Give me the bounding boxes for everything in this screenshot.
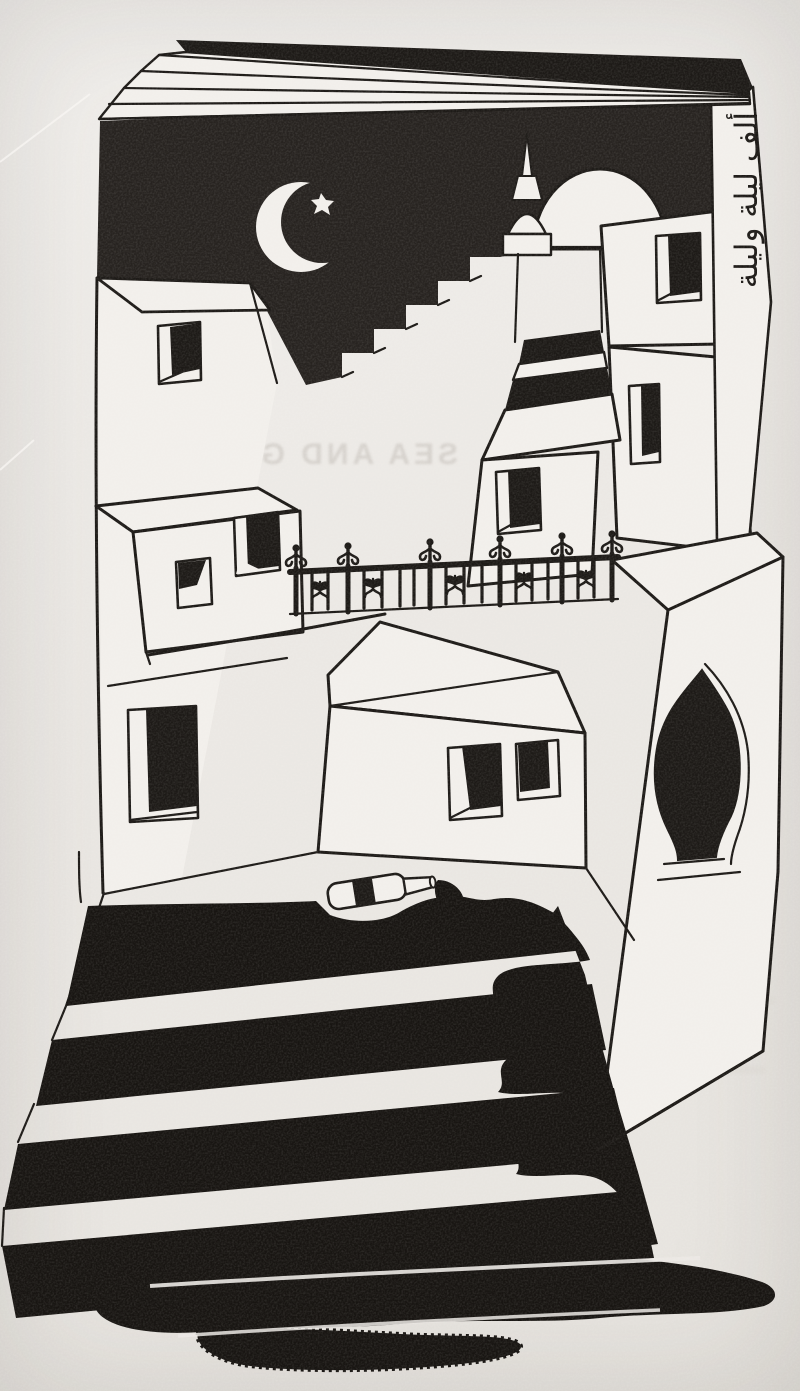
ink-illustration-page: SEA AND GRASS	[0, 0, 800, 1391]
illustration-canvas: SEA AND GRASS	[0, 0, 800, 1391]
paper-grain-overlay	[0, 0, 800, 1391]
